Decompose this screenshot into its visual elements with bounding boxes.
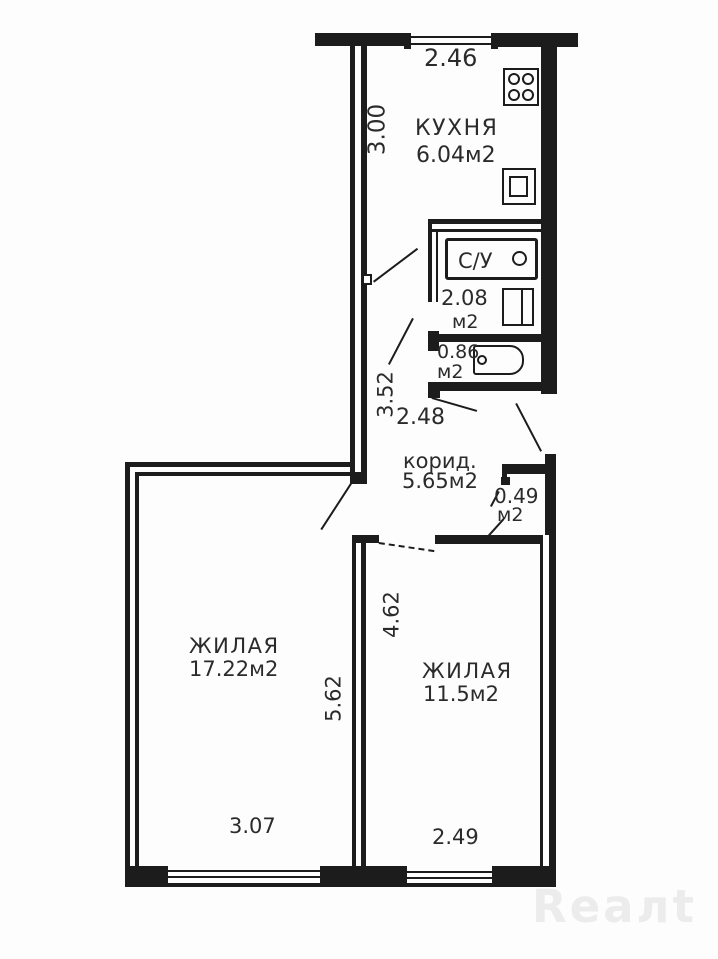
washer-icon — [502, 288, 534, 326]
kitchen-door-hinge — [362, 274, 372, 285]
stove-burner-icon — [522, 73, 534, 85]
entrance-door-swing — [515, 403, 542, 452]
dim-hall-width: 2.48 — [396, 406, 445, 429]
wall-bottom-middle-block — [320, 866, 407, 887]
dim-living1-height: 5.62 — [324, 664, 345, 734]
window-cap-left — [404, 33, 411, 49]
dim-hall-height: 3.52 — [376, 360, 397, 430]
area-kitchen: 6.04м2 — [416, 144, 496, 167]
floor-plan-canvas: 2.46 3.00 КУХНЯ 6.04м2 С/У 2.08 м2 0.86 … — [0, 0, 718, 959]
stove-burner-icon — [508, 89, 520, 101]
wall-room2-top-stub — [353, 535, 379, 543]
wall-bath-left-inner — [436, 231, 438, 302]
area-bathroom-unit: м2 — [452, 313, 478, 333]
dim-kitchen-height: 3.00 — [367, 95, 390, 165]
stove-burner-icon — [522, 89, 534, 101]
wall-room1-top-outer — [127, 462, 355, 467]
dim-kitchen-width: 2.46 — [424, 46, 477, 71]
room1-window-line — [168, 870, 320, 872]
area-living2: 11.5м2 — [423, 683, 499, 705]
wall-right-outer — [549, 535, 556, 886]
window-cap-right — [491, 33, 498, 49]
area-living1: 17.22м2 — [189, 658, 278, 680]
wall-bath-top-inner — [428, 229, 541, 232]
bath-faucet-icon — [512, 251, 527, 266]
bathroom-door-swing — [388, 318, 414, 365]
room2-window-line — [407, 877, 492, 879]
room-label-bathroom: С/У — [458, 250, 493, 272]
washer-detail-line — [521, 290, 523, 324]
wall-middle-outer — [352, 535, 356, 872]
area-toilet: 0.86 — [437, 343, 479, 363]
wall-middle-inner — [361, 535, 366, 872]
kitchen-window-line — [411, 36, 491, 38]
dim-living2-width: 2.49 — [432, 826, 479, 848]
wall-closet-top — [502, 464, 553, 474]
room-label-living1: ЖИЛАЯ — [189, 635, 280, 657]
room1-window-line — [168, 876, 320, 878]
wall-bath-top — [428, 219, 541, 224]
dim-living2-height: 4.62 — [382, 580, 403, 650]
dim-living1-width: 3.07 — [229, 815, 276, 837]
wall-bottom-left-block — [125, 866, 168, 887]
wall-top-left — [315, 33, 407, 46]
wall-corridor-left-outer — [350, 46, 355, 482]
stove-icon — [503, 68, 539, 106]
wall-right-kitchen-bath — [541, 40, 557, 394]
wall-left-outer — [125, 462, 130, 886]
wall-right-inner — [540, 543, 543, 868]
realt-watermark: Reaлt — [532, 880, 697, 933]
wall-toilet-bottom — [428, 382, 543, 391]
room-label-kitchen: КУХНЯ — [415, 117, 498, 140]
area-corridor: 5.65м2 — [402, 470, 478, 492]
wall-toilet-hinge — [428, 382, 440, 398]
room2-window-line — [407, 871, 492, 873]
kitchen-door-swing — [373, 248, 418, 283]
room1-window-sill — [168, 883, 320, 887]
room-label-living2: ЖИЛАЯ — [422, 660, 513, 682]
wall-bath-left-outer — [428, 219, 432, 302]
area-toilet-unit: м2 — [437, 363, 463, 383]
area-closet-unit: м2 — [497, 506, 523, 526]
room1-door-swing — [320, 483, 352, 530]
wall-top-right — [498, 33, 578, 47]
wall-room1-top-inner — [137, 472, 354, 476]
area-bathroom: 2.08 — [441, 287, 488, 309]
room2-door-swing — [379, 542, 435, 552]
room2-window-sill — [407, 883, 492, 887]
wall-left-inner — [135, 472, 139, 872]
kitchen-sink-basin-icon — [509, 176, 528, 197]
stove-burner-icon — [508, 73, 520, 85]
